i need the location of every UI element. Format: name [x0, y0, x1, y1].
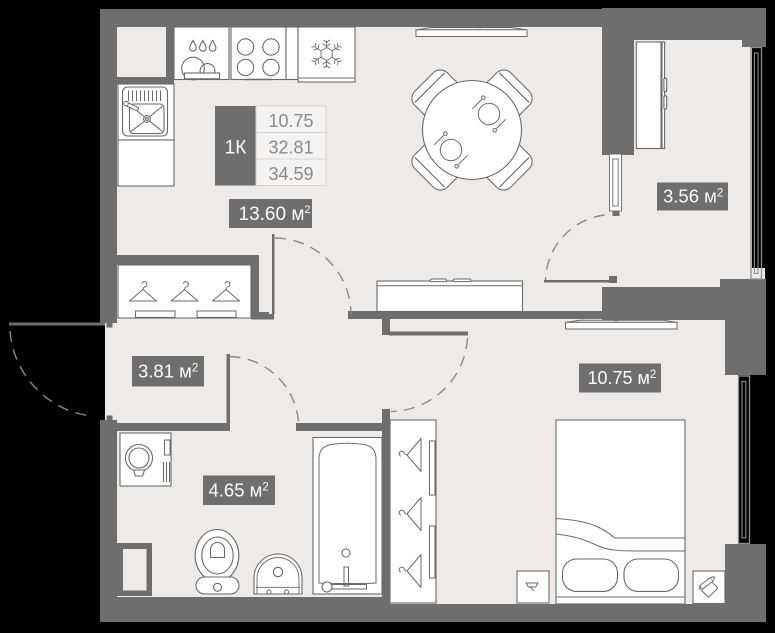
svg-text:13.60 м2: 13.60 м2	[239, 204, 311, 225]
svg-text:10.75: 10.75	[268, 111, 313, 131]
svg-text:32.81: 32.81	[268, 138, 313, 158]
svg-text:4.65 м2: 4.65 м2	[209, 480, 269, 501]
svg-text:1К: 1К	[225, 138, 247, 159]
svg-text:10.75 м2: 10.75 м2	[588, 368, 657, 388]
svg-text:34.59: 34.59	[268, 164, 313, 184]
svg-text:3.56 м2: 3.56 м2	[663, 186, 723, 207]
svg-text:3.81 м2: 3.81 м2	[138, 361, 198, 382]
